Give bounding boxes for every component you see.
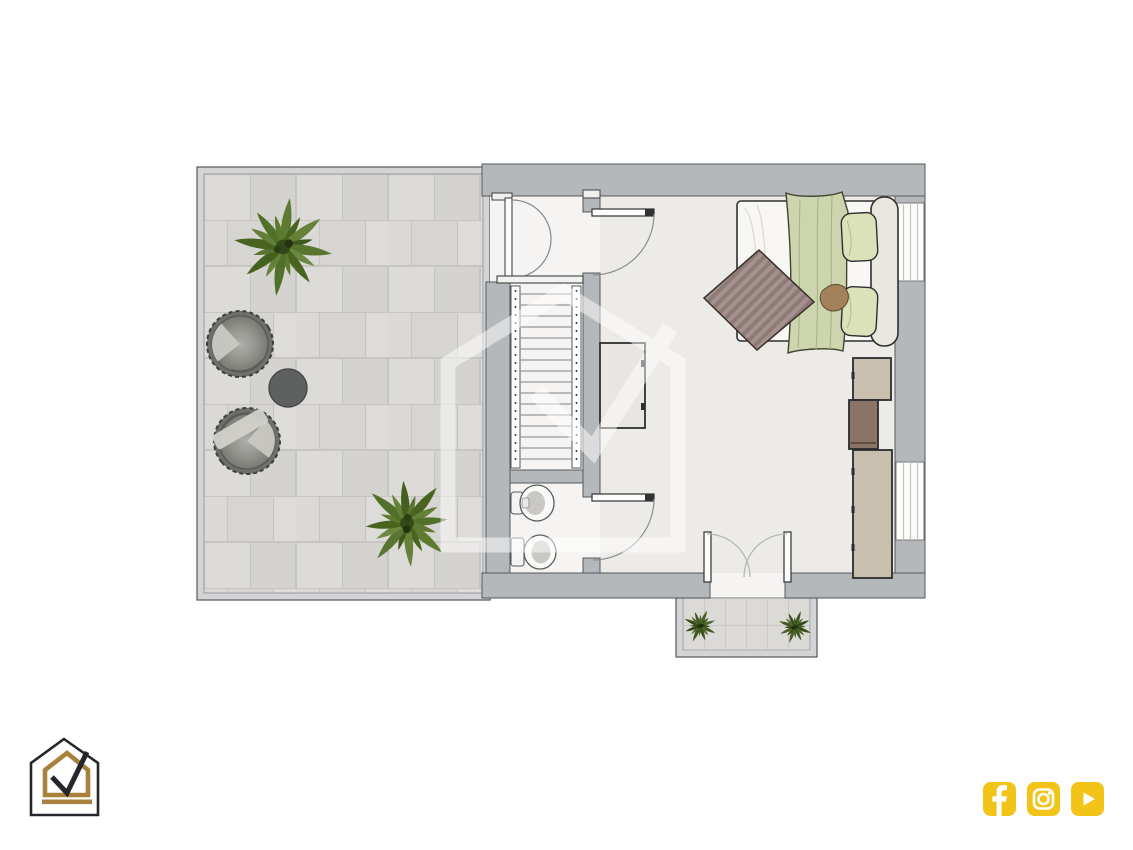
wardrobe xyxy=(849,358,892,578)
agency-logo xyxy=(24,728,110,823)
round-side-table xyxy=(269,369,307,407)
wall-top xyxy=(482,164,925,196)
social-bar xyxy=(983,782,1104,816)
wall-bottom-left xyxy=(482,573,710,598)
floorplan xyxy=(0,0,1133,850)
floorplan-canvas xyxy=(0,0,1133,850)
decor-cushion xyxy=(820,284,848,311)
instagram-icon[interactable] xyxy=(1027,782,1060,816)
wall-stairs-bath xyxy=(510,470,583,483)
wardrobe-drawer xyxy=(849,400,878,449)
door-threshold xyxy=(583,190,600,198)
wardrobe-tall xyxy=(853,450,892,578)
wardrobe-cabinet xyxy=(853,358,891,400)
stair-landing-edge xyxy=(497,276,583,283)
youtube-icon[interactable] xyxy=(1071,782,1104,816)
facebook-icon[interactable] xyxy=(983,782,1016,816)
pillow xyxy=(841,212,878,262)
house-checkmark-logo xyxy=(24,728,110,823)
balcony-door-opening xyxy=(710,573,785,598)
bedroom-door-opening xyxy=(583,212,600,273)
